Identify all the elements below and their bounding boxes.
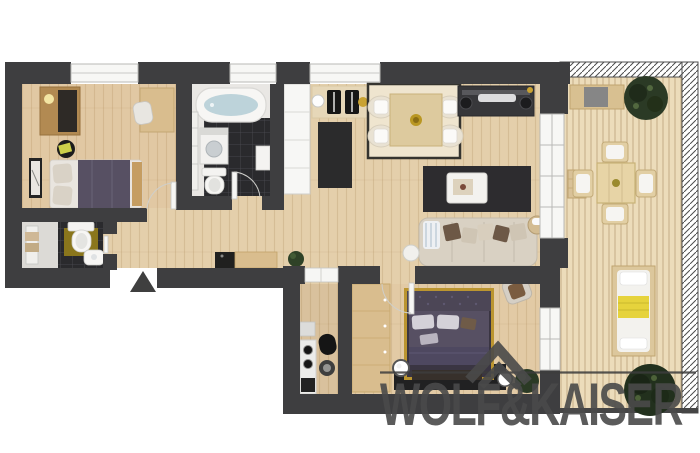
wardrobe-lamp [44, 94, 54, 104]
door-leaf [232, 172, 237, 199]
wall [540, 238, 568, 268]
kitchen-door [305, 268, 338, 282]
bathtub [196, 88, 266, 122]
sideboard [215, 252, 277, 268]
yellow-blanket [618, 296, 649, 318]
balcony-plant-top [624, 76, 668, 120]
gold-decor [358, 97, 368, 107]
pillow [437, 314, 460, 329]
balcony-bench [570, 85, 624, 109]
wall [415, 266, 540, 284]
outdoor-chair [636, 170, 656, 197]
wall-left [5, 62, 22, 288]
wall [380, 62, 570, 84]
blanket-fold [409, 347, 489, 365]
bathroom-wall-cabinet [256, 146, 270, 170]
bowl [312, 95, 324, 107]
wall [5, 268, 110, 288]
floor-lamp [392, 359, 410, 377]
balcony [556, 62, 698, 416]
wall-kitchen-bedroom [338, 284, 352, 394]
wall-wc [103, 208, 117, 234]
outdoor-table [597, 163, 635, 203]
wall [540, 266, 560, 308]
bedroom2-balcony-window [540, 308, 560, 370]
washing-machine [200, 128, 228, 164]
wall [352, 266, 380, 284]
stove-oven [300, 322, 316, 394]
balcony-glazing [540, 114, 564, 238]
balcony-edge [556, 408, 698, 413]
runner-rug [318, 122, 352, 188]
desk-chair [132, 101, 154, 126]
tufted-headboard [407, 291, 491, 311]
wall [540, 84, 568, 114]
wall-bedroom-bath [176, 84, 192, 210]
wc-basin [84, 250, 104, 265]
speaker [520, 97, 532, 109]
wall-bath-right [270, 84, 284, 200]
wall [276, 62, 310, 84]
oven [301, 378, 315, 392]
bathroom [190, 84, 270, 196]
deck-boards [556, 74, 684, 412]
soundbar [478, 94, 516, 102]
wall [176, 196, 232, 210]
outdoor-chair [602, 142, 628, 162]
floor-plan-screenshot: WOLF&KAISER [0, 0, 700, 453]
pillow [412, 314, 435, 330]
wall-kitchen-left [283, 266, 300, 394]
pillow [52, 163, 73, 184]
wardrobe [40, 87, 80, 135]
wall [300, 266, 305, 284]
blanket [78, 160, 130, 208]
corner-sofa [419, 218, 537, 266]
wall-wc [103, 254, 117, 270]
work-desk [312, 86, 370, 118]
hallway-plant [288, 251, 304, 267]
side-table [57, 140, 75, 158]
wall-bottom [283, 394, 560, 414]
tv-sideboard [458, 86, 534, 116]
side-lamp [403, 245, 419, 261]
dining-set [368, 84, 463, 158]
pillow [52, 185, 73, 206]
wall [338, 266, 352, 284]
speaker [460, 97, 472, 109]
kitchen-sink [300, 322, 315, 336]
coffee-table [447, 173, 487, 203]
outdoor-chair [573, 170, 593, 197]
wall [138, 62, 230, 84]
towel-radiator [25, 226, 39, 264]
wall [22, 208, 103, 222]
outdoor-chair [602, 204, 628, 224]
double-bed [50, 160, 142, 208]
door-leaf [409, 283, 414, 314]
wall [540, 370, 560, 414]
bed-bench [132, 162, 142, 206]
wc [22, 222, 104, 268]
tall-cabinet [284, 84, 310, 194]
door-leaf [104, 236, 108, 253]
door-leaf [171, 182, 176, 209]
wardrobe-2 [352, 284, 390, 392]
wall [157, 268, 283, 288]
picture-frame [29, 158, 42, 198]
burner [304, 346, 313, 355]
double-bed-2 [404, 288, 494, 380]
burner [304, 360, 313, 369]
floor-plan [0, 0, 700, 453]
lounger [612, 266, 655, 356]
